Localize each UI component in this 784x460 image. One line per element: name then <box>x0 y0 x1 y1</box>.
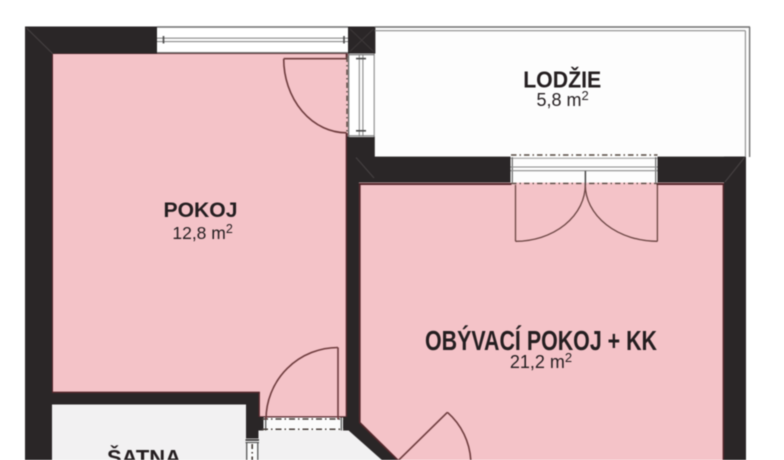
svg-text:5,8 m2: 5,8 m2 <box>536 88 588 110</box>
svg-text:21,2 m2: 21,2 m2 <box>510 350 572 372</box>
svg-text:LODŽIE: LODŽIE <box>523 66 601 93</box>
svg-text:POKOJ: POKOJ <box>164 199 238 222</box>
svg-text:ŠATNA: ŠATNA <box>107 446 181 460</box>
svg-text:12,8 m2: 12,8 m2 <box>172 222 233 243</box>
